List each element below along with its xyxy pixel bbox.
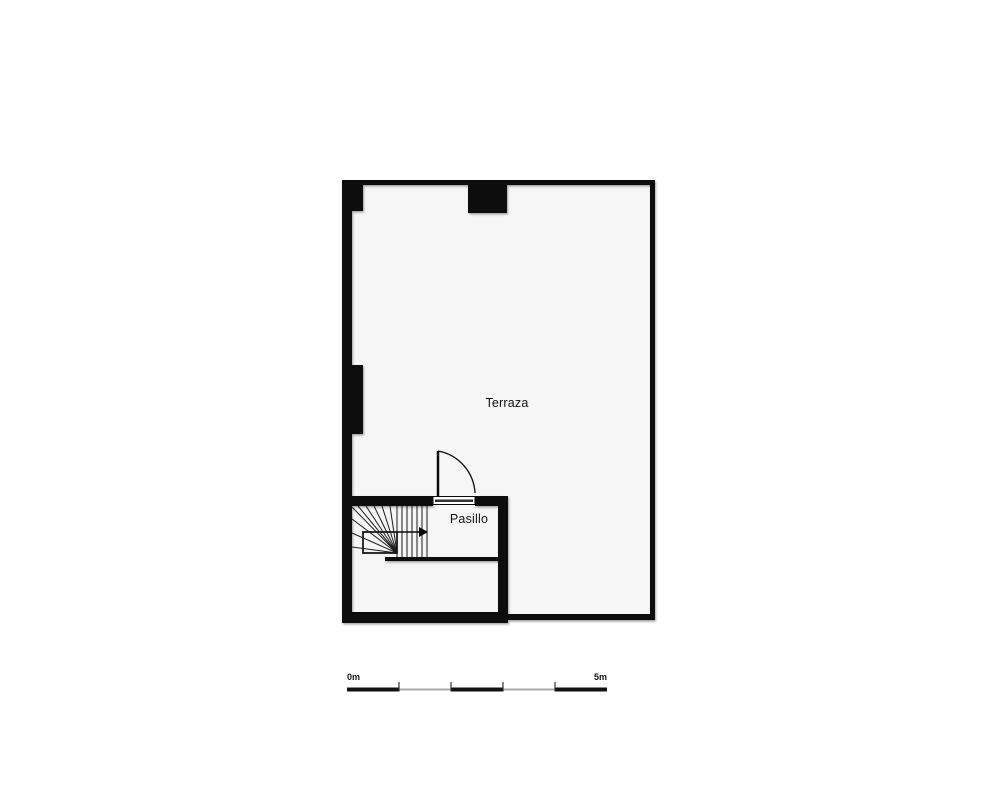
floor-plan-canvas: Terraza Pasillo 0m 5m <box>0 0 1000 800</box>
wall-pasillo-top-left <box>352 496 433 506</box>
wall-bottom-right <box>498 614 655 620</box>
wall-right <box>650 180 655 620</box>
wall-bottom-left <box>342 612 508 623</box>
door-sill-band <box>435 500 473 503</box>
room-label-pasillo: Pasillo <box>450 512 488 526</box>
scale-segment-black <box>347 688 399 692</box>
stair-bottom-edge <box>385 557 498 561</box>
scale-segment-gray <box>399 689 451 691</box>
pillar-top-center <box>468 183 507 213</box>
door-threshold <box>433 497 475 505</box>
scale-segment-black <box>555 688 607 692</box>
pillar-top-left <box>342 183 363 211</box>
scale-start-label: 0m <box>347 672 360 682</box>
scale-end-label: 5m <box>594 672 607 682</box>
scale-segment-black <box>451 688 503 692</box>
floor-plan-drawing: Terraza Pasillo 0m 5m <box>0 0 1000 800</box>
scale-bar: 0m 5m <box>347 672 607 692</box>
pillar-left-middle <box>342 365 363 434</box>
room-label-terraza: Terraza <box>485 396 528 410</box>
wall-pasillo-right <box>498 496 508 620</box>
scale-segment-gray <box>503 689 555 691</box>
